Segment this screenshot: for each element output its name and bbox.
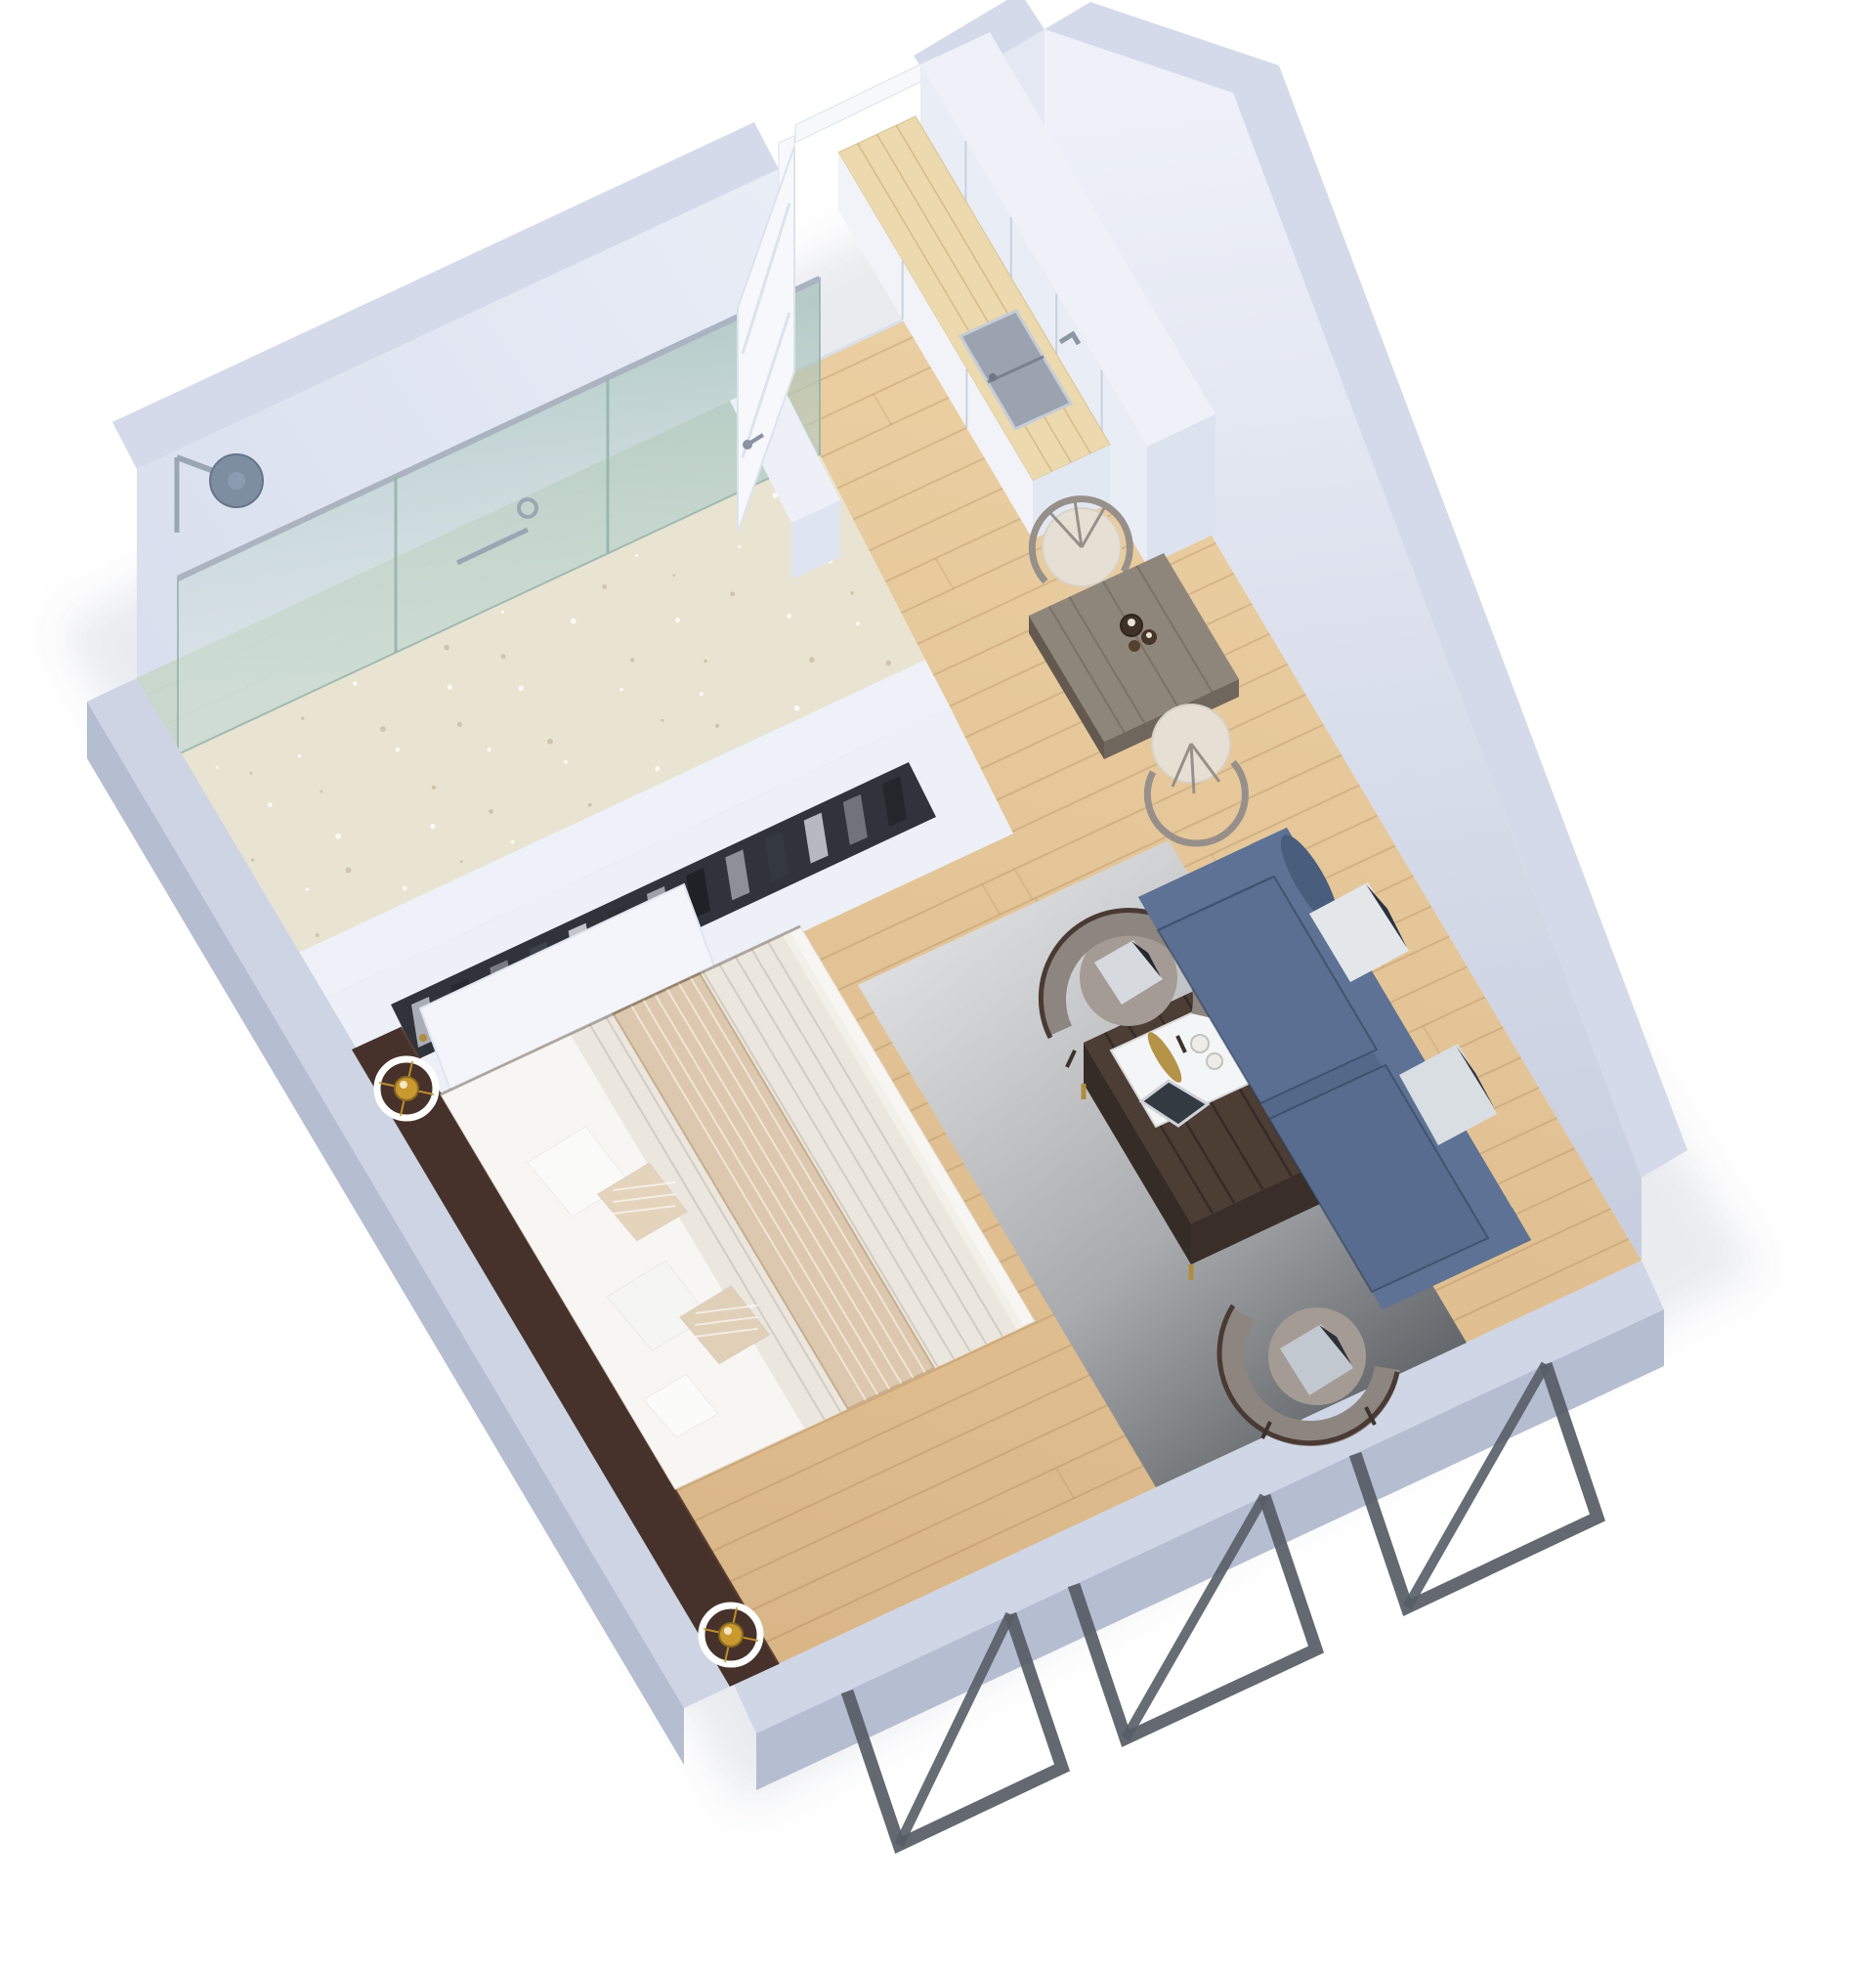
terrazzo-speckle [571, 619, 576, 624]
floorplan-canvas [0, 0, 1876, 1970]
terrazzo-speckle [396, 748, 400, 751]
ring-lamp-glow [724, 1627, 732, 1635]
terrazzo-speckle [886, 661, 892, 666]
terrazzo-speckle [251, 858, 254, 861]
floorplan-stage: 3D isometric floor plan of a studio apar… [0, 0, 1876, 1970]
terrazzo-speckle [588, 803, 592, 807]
ring-lamp-bulb [719, 1623, 743, 1647]
ring-lamp-glow [400, 1081, 407, 1089]
terrazzo-speckle [501, 611, 504, 614]
candle-wax [1128, 619, 1135, 626]
terrazzo-speckle [673, 574, 676, 577]
shower-head-center [228, 472, 245, 490]
candle-holder [1129, 640, 1140, 652]
terrazzo-speckle [787, 614, 791, 619]
terrazzo-speckle [448, 685, 452, 690]
terrazzo-speckle [353, 681, 357, 685]
terrazzo-speckle [298, 754, 302, 758]
terrazzo-speckle [661, 719, 663, 722]
sink-drain [989, 373, 997, 381]
terrazzo-speckle [432, 786, 436, 790]
terrazzo-speckle [635, 554, 638, 557]
candle-wax [1146, 632, 1152, 638]
terrazzo-speckle [794, 706, 800, 711]
terrazzo-speckle [564, 760, 568, 764]
terrazzo-speckle [703, 660, 707, 664]
terrazzo-speckle [335, 834, 341, 839]
terrazzo-speckle [738, 545, 741, 548]
terrazzo-speckle [547, 739, 553, 745]
terrazzo-speckle [489, 809, 493, 814]
terrazzo-speckle [430, 824, 435, 829]
terrazzo-speckle [316, 933, 320, 937]
terrazzo-speckle [488, 748, 491, 751]
terrazzo-speckle [700, 692, 703, 696]
terrazzo-speckle [602, 584, 607, 589]
terrazzo-speckle [856, 621, 860, 625]
terrazzo-speckle [457, 722, 462, 727]
terrazzo-speckle [730, 592, 735, 597]
terrazzo-speckle [306, 887, 310, 891]
terrazzo-speckle [320, 791, 322, 793]
terrazzo-speckle [850, 591, 854, 595]
terrazzo-speckle [444, 645, 449, 651]
terrazzo-speckle [380, 726, 386, 732]
terrazzo-speckle [301, 716, 304, 719]
ring-lamp-bulb [395, 1077, 418, 1100]
terrazzo-speckle [655, 766, 660, 771]
terrazzo-speckle [518, 686, 524, 692]
terrazzo-speckle [216, 766, 219, 769]
wardrobe-knob [419, 1034, 427, 1042]
glass-tumbler [1191, 1035, 1209, 1052]
terrazzo-speckle [346, 868, 352, 874]
terrazzo-speckle [675, 618, 680, 622]
terrazzo-speckle [630, 658, 635, 663]
terrazzo-speckle [511, 840, 514, 843]
terrazzo-speckle [268, 802, 273, 807]
terrazzo-speckle [249, 772, 252, 775]
terrazzo-speckle [403, 886, 407, 891]
terrazzo-speckle [809, 657, 815, 663]
glass-tumbler [1207, 1053, 1222, 1069]
terrazzo-speckle [501, 654, 506, 659]
terrazzo-speckle [619, 688, 623, 692]
terrazzo-speckle [715, 724, 719, 728]
terrazzo-speckle [460, 860, 463, 863]
